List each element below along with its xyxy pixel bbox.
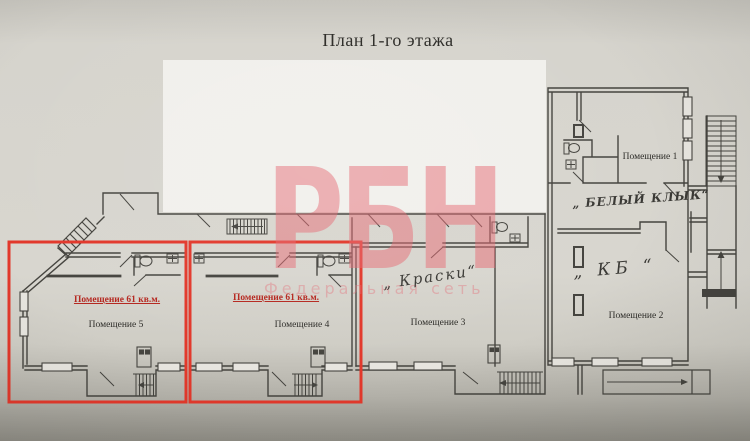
room4-entrance-stairs-icon (292, 374, 322, 396)
room1-name-label: Помещение 1 (623, 152, 678, 162)
room5-name-label: Помещение 5 (89, 320, 144, 330)
wall-stubs (574, 125, 583, 315)
entrance-ramp-icon (58, 218, 96, 256)
bottom-ramp-icon (603, 370, 710, 394)
room3-name-label: Помещение 3 (411, 318, 466, 328)
room5-area-label: Помещение 61 кв.м. (74, 295, 160, 305)
room4-name-label: Помещение 4 (275, 320, 330, 330)
page-title: План 1-го этажа (322, 30, 453, 51)
room5-entrance-stairs-icon (133, 374, 156, 396)
corridor-stairs-icon (227, 219, 267, 234)
chamfer-wall (23, 217, 104, 294)
room4-area-label: Помещение 61 кв.м. (233, 293, 319, 303)
right-block-walls (548, 88, 736, 394)
room3-entrance-stairs-icon (497, 372, 543, 394)
floor-plan-photo: РБН Федеральная сеть План 1-го этажа Пом… (0, 0, 750, 441)
room2-name-label: Помещение 2 (609, 311, 664, 321)
